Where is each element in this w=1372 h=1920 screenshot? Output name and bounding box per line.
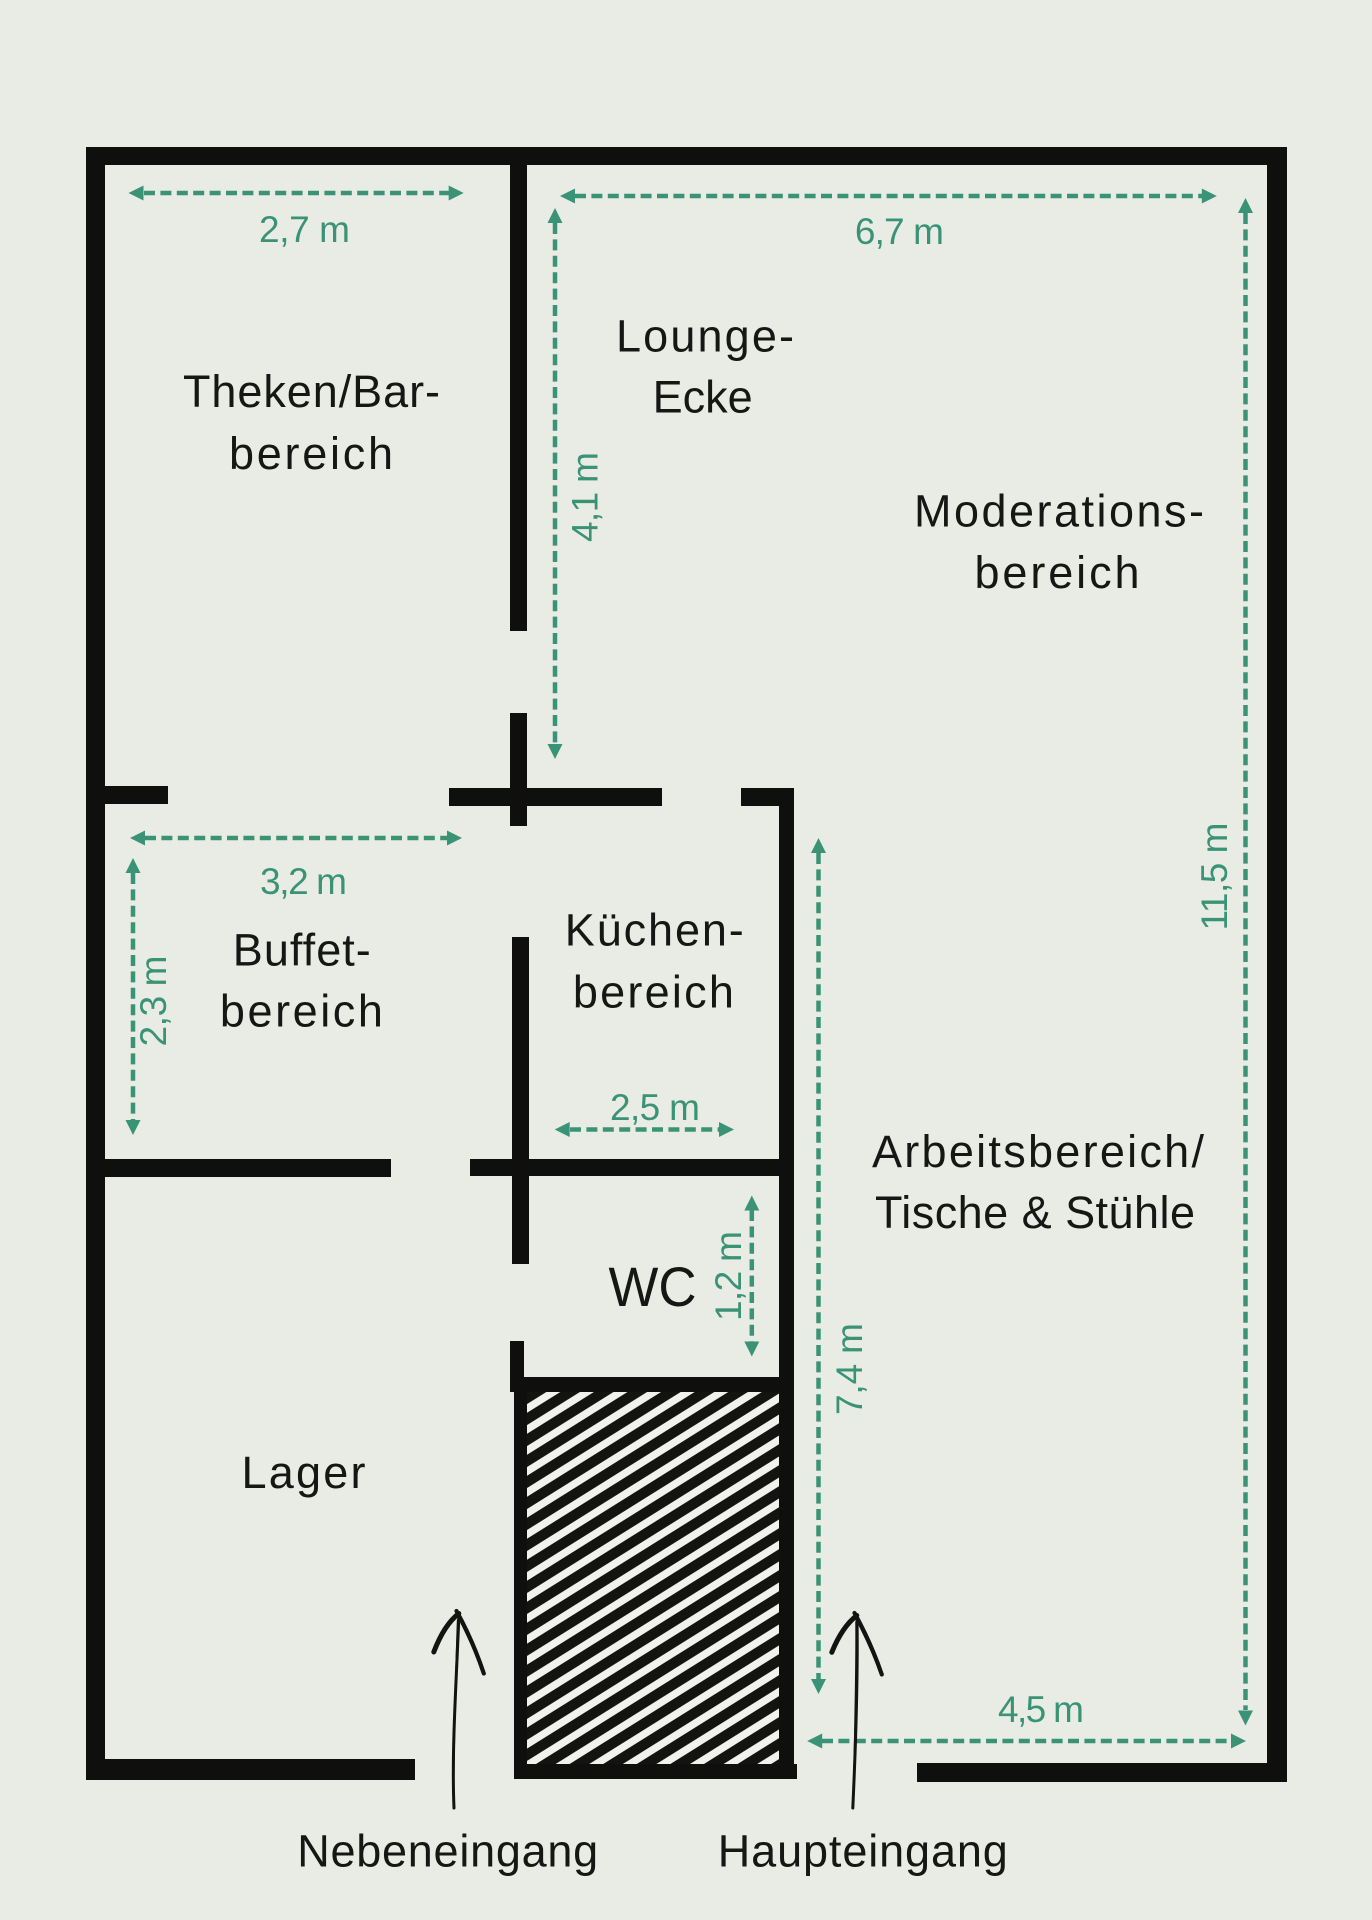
- svg-text:bereich: bereich: [220, 986, 383, 1037]
- svg-text:Lounge-: Lounge-: [616, 310, 794, 361]
- svg-text:2,5 m: 2,5 m: [610, 1087, 700, 1128]
- svg-text:Lager: Lager: [242, 1447, 366, 1498]
- svg-text:bereich: bereich: [975, 547, 1140, 598]
- svg-text:Haupteingang: Haupteingang: [718, 1826, 1008, 1877]
- svg-text:Theken/Bar-: Theken/Bar-: [183, 366, 440, 417]
- svg-text:4,1 m: 4,1 m: [565, 452, 606, 542]
- svg-text:1,2 m: 1,2 m: [708, 1231, 749, 1321]
- svg-text:11,5 m: 11,5 m: [1194, 823, 1235, 931]
- svg-text:Buffet-: Buffet-: [233, 925, 371, 976]
- svg-text:Arbeitsbereich/: Arbeitsbereich/: [872, 1126, 1204, 1177]
- svg-text:Ecke: Ecke: [653, 371, 753, 422]
- svg-text:Moderations-: Moderations-: [914, 485, 1204, 536]
- svg-text:Tische & Stühle: Tische & Stühle: [875, 1187, 1195, 1238]
- svg-text:Nebeneingang: Nebeneingang: [297, 1826, 598, 1877]
- svg-text:6,7 m: 6,7 m: [855, 211, 944, 252]
- svg-text:4,5 m: 4,5 m: [998, 1689, 1084, 1730]
- svg-text:3,2 m: 3,2 m: [260, 861, 347, 902]
- svg-text:WC: WC: [609, 1255, 697, 1318]
- svg-text:bereich: bereich: [573, 967, 734, 1018]
- svg-text:Küchen-: Küchen-: [565, 905, 744, 956]
- svg-text:2,3 m: 2,3 m: [133, 956, 174, 1047]
- svg-text:7,4 m: 7,4 m: [829, 1323, 870, 1415]
- svg-text:bereich: bereich: [229, 428, 393, 479]
- svg-text:2,7 m: 2,7 m: [259, 209, 350, 250]
